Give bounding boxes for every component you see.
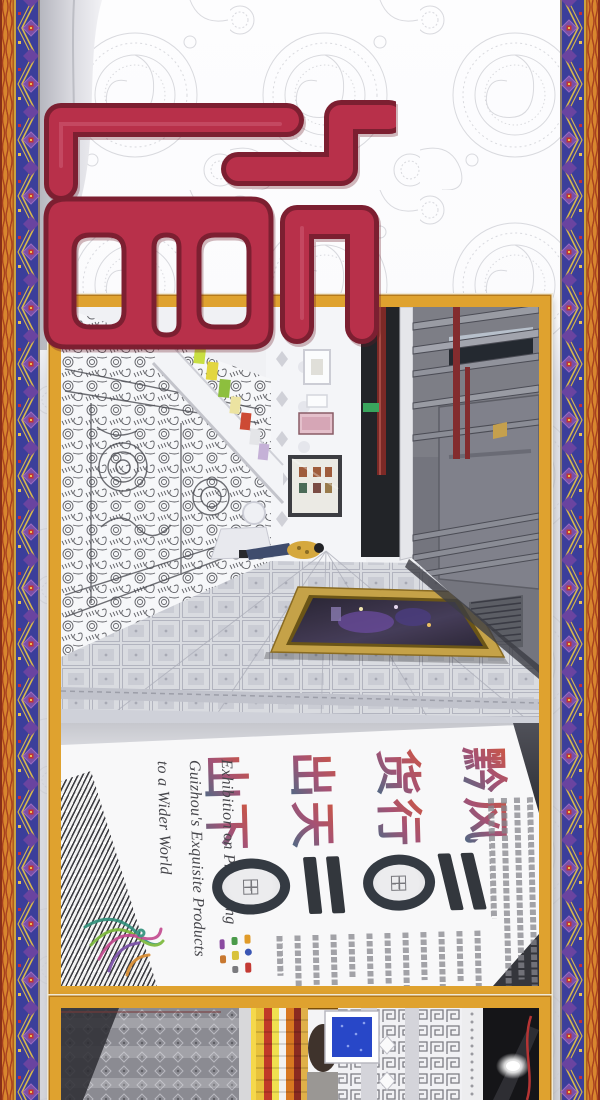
blue-artwork [325,1011,379,1063]
motif-bar [460,853,487,910]
brand-logo [40,96,396,354]
motif-ellipse [211,858,290,916]
gallery-photo-illustration [61,307,539,723]
right-border-pattern [560,0,600,1100]
poster-page: 黔 货 出 山 风 行 天 下 Exhibition o [0,0,600,1100]
photo-frame-bottom[interactable] [50,997,550,1100]
bottom-photo-illustration [61,1008,539,1100]
motif-ellipse [362,854,435,912]
motif-bar [326,856,345,913]
slogan-char: 风 [439,795,526,843]
motif-bar [437,853,464,910]
motif-bar [303,857,322,914]
left-border-pattern [0,0,40,1100]
rotated-poster-content: 黔 货 出 山 风 行 天 下 Exhibition o [61,725,539,986]
slogan-char: 货 [352,748,439,796]
slogan-char: 出 [266,750,353,798]
date-motif [62,849,539,925]
slogan-poster-photo: 黔 货 出 山 风 行 天 下 Exhibition o [61,723,539,986]
slogan-char: 黔 [438,745,525,793]
slogan-char: 天 [267,800,354,848]
photo-frame-main[interactable]: 黔 货 出 山 风 行 天 下 Exhibition o [50,296,550,997]
slogan-char: 行 [353,798,440,846]
product-strips [256,1008,308,1100]
